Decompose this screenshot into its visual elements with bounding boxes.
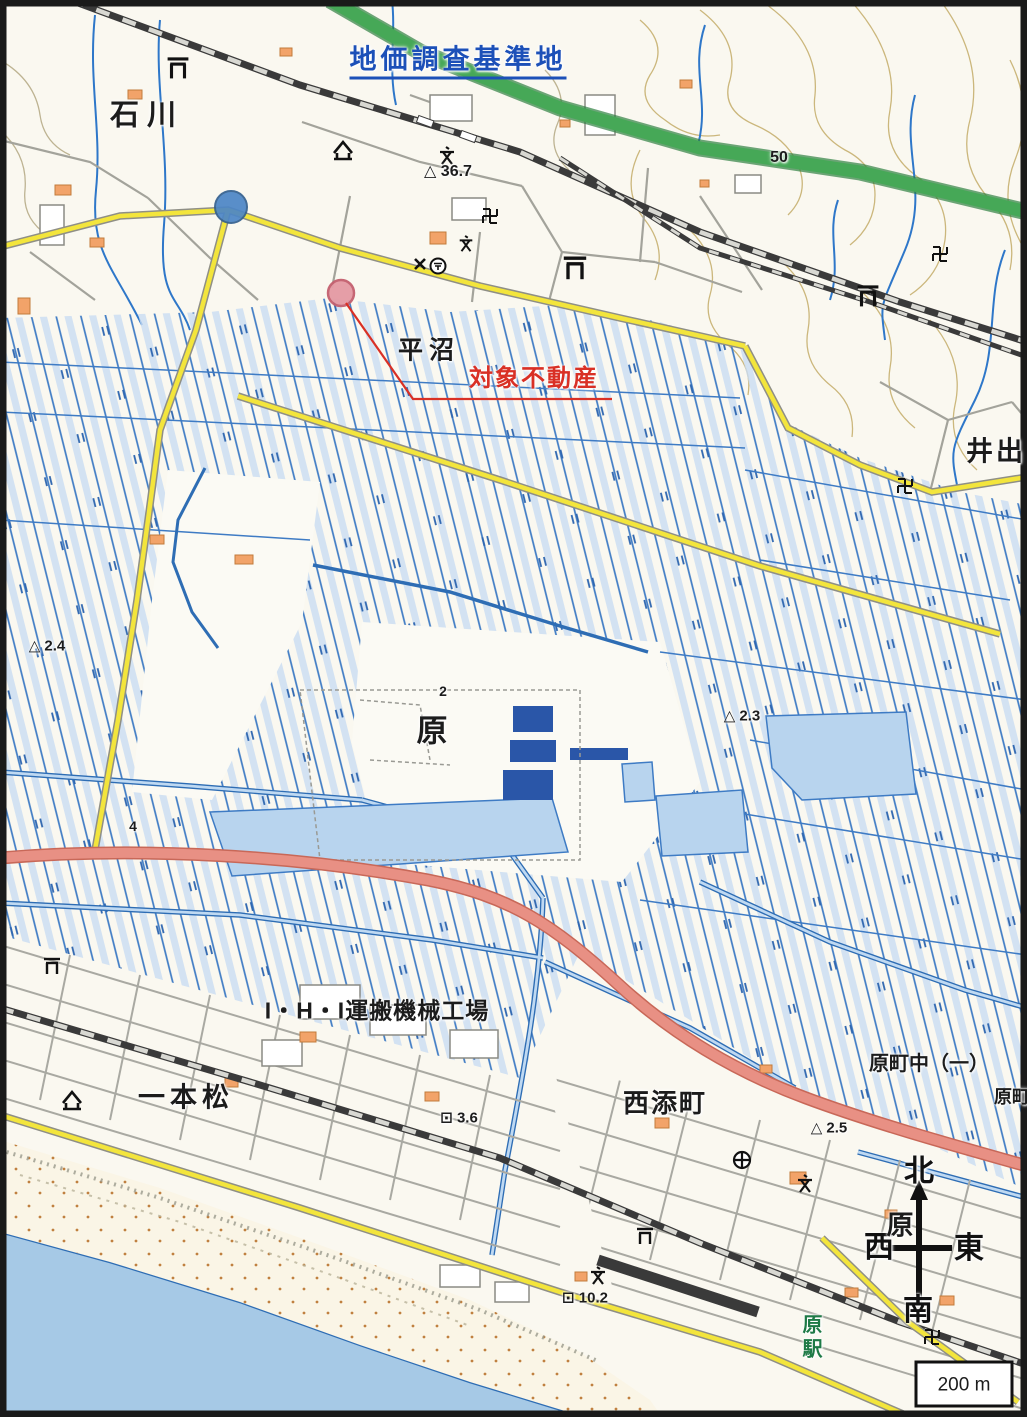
compass-north-label: 北 [904, 1157, 934, 1187]
contour-label-50: 50 [770, 150, 788, 166]
compass-south-label: 南 [903, 1296, 933, 1326]
factory-label: I・H・I運搬機械工場 [265, 1000, 489, 1023]
place-label-hiranuma: 平沼 [398, 339, 460, 364]
place-label-haramachi: 原町 [994, 1088, 1027, 1106]
station-label-hara: 原駅 [800, 1314, 820, 1362]
benchmark-elevation-10-2: ⊡ 10.2 [562, 1291, 608, 1306]
map-graphics [0, 0, 1027, 1417]
spot-elevation-2-3: △ 2.3 [724, 709, 761, 724]
scale-bar-label: 200 m [938, 1376, 991, 1395]
place-label-ipponmatsu: 一本松 [138, 1085, 234, 1112]
spot-elevation-2-5: △ 2.5 [811, 1121, 848, 1136]
place-label-ishikawa: 石川 [110, 102, 184, 131]
compass-area-label: 原 [887, 1213, 914, 1240]
spot-elevation-2-4: △ 2.4 [29, 639, 66, 654]
benchmark-elevation-3-6: ⊡ 3.6 [440, 1111, 478, 1126]
place-label-nishizoecho: 西添町 [623, 1090, 707, 1116]
benchmark-label: 地価調査基準地 [350, 47, 567, 80]
benchmark-marker [215, 191, 247, 223]
place-label-haramachi-naka: 原町中（一） [869, 1054, 989, 1074]
subject-property-label: 対象不動産 [469, 367, 599, 391]
compass-east-label: 東 [954, 1234, 984, 1264]
place-label-ide: 井出 [966, 439, 1026, 466]
subject-marker [328, 280, 354, 306]
spot-elevation-36-7: △ 36.7 [424, 164, 472, 180]
contour-label-4: 4 [129, 819, 137, 833]
post-office-icon [431, 259, 446, 274]
health-center-icon [734, 1152, 750, 1168]
place-label-hara: 原 [417, 716, 448, 747]
map-canvas: 地価調査基準地 対象不動産 石川 平沼 井出 原 I・H・I運搬機械工場 一本松… [0, 0, 1027, 1417]
contour-label-2: 2 [439, 684, 447, 698]
